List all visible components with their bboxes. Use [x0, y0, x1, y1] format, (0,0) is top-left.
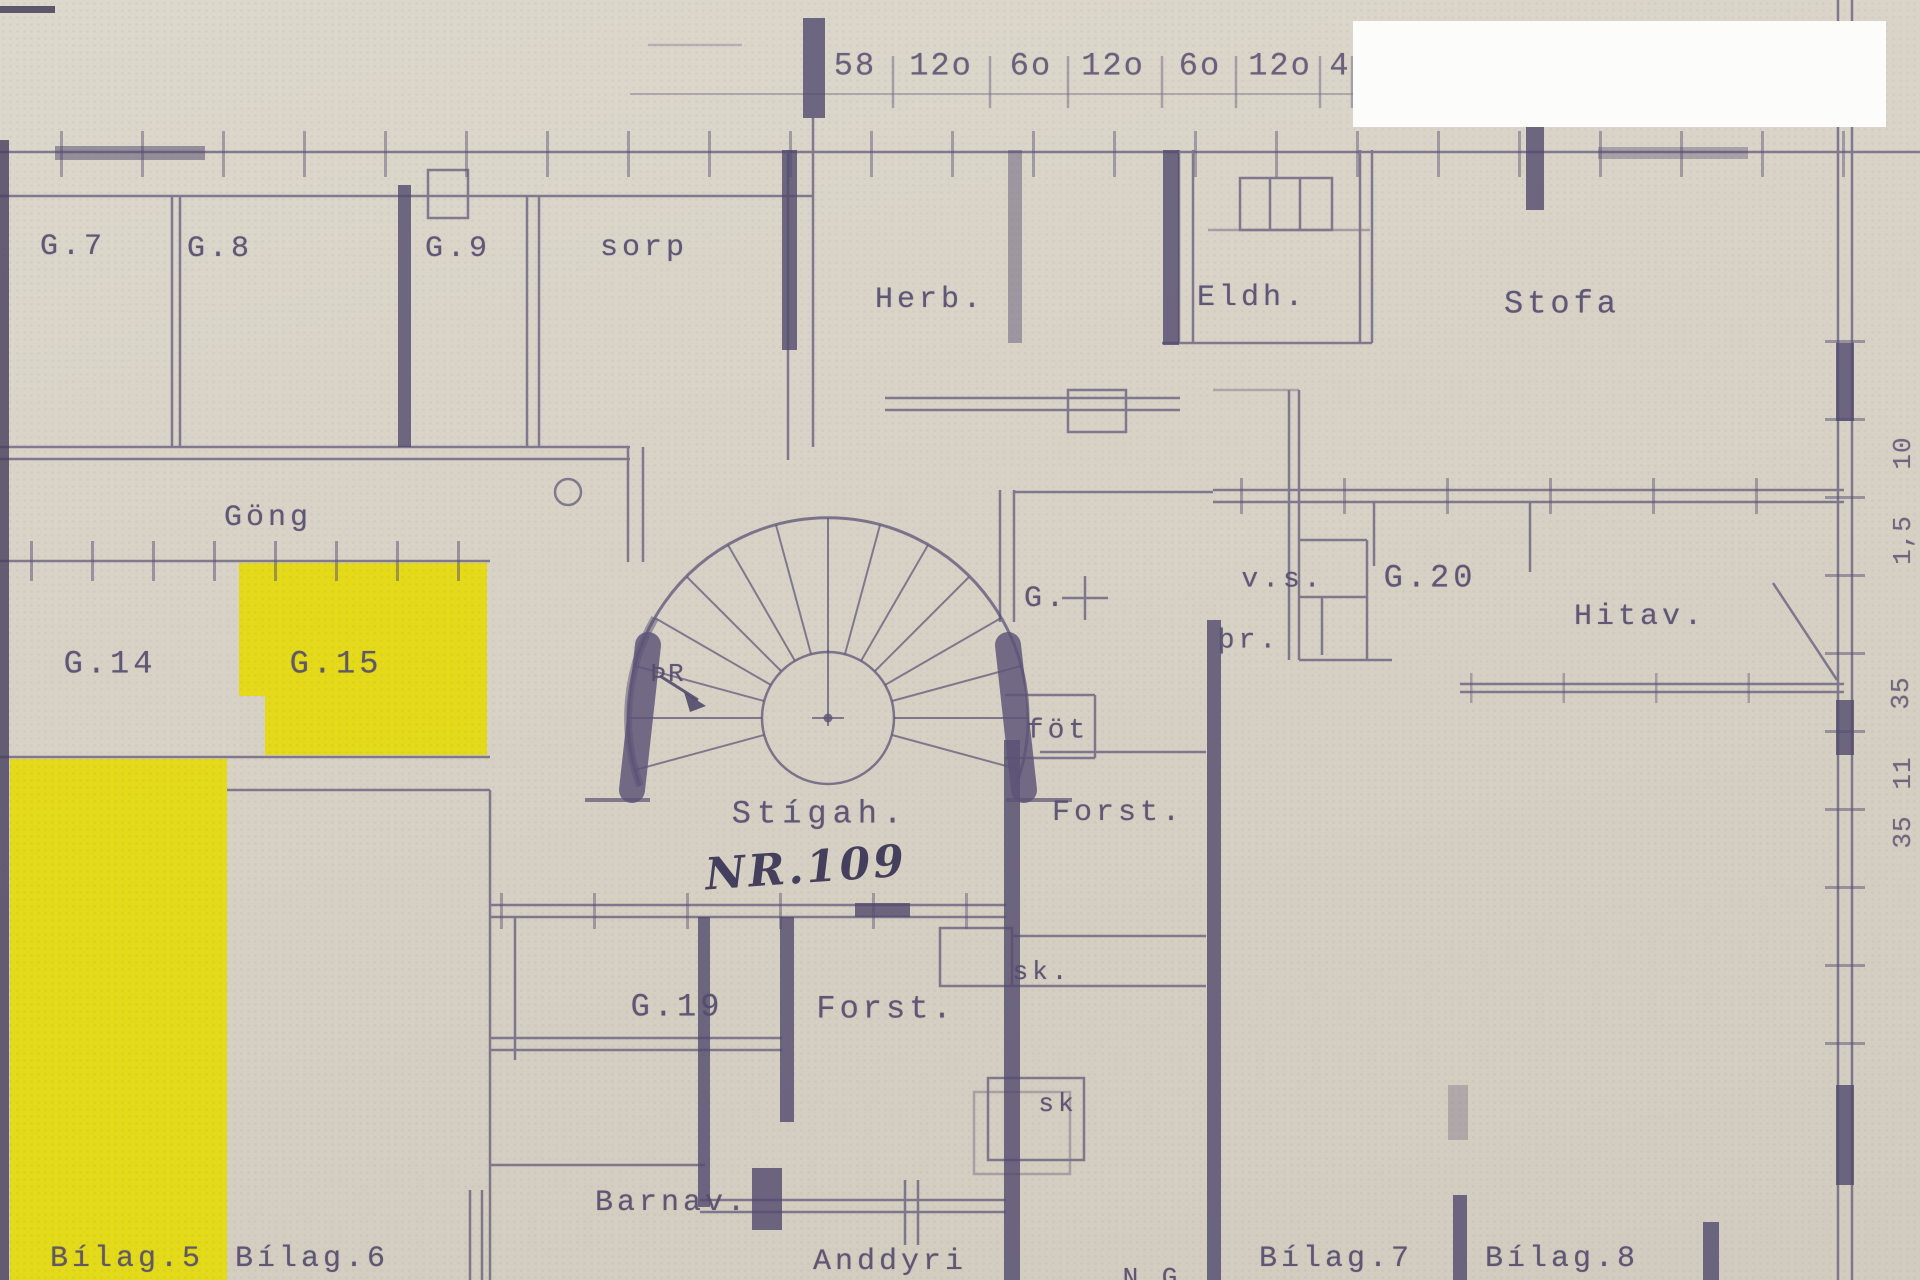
room-label-g19: G.19 — [631, 989, 724, 1026]
dimension-4: 4 — [1329, 48, 1350, 85]
room-label-ng-partial: N.G — [1123, 1263, 1182, 1280]
room-label-forst-upper: Forst. — [1052, 796, 1184, 830]
room-label-gong: Göng — [224, 501, 312, 535]
dimension-58: 58 — [834, 48, 876, 85]
room-label-vs: v.s. — [1241, 565, 1324, 596]
room-label-hitav: Hitav. — [1574, 600, 1706, 634]
scan-edge — [0, 140, 9, 1280]
dimension-12o-a: 12o — [909, 48, 973, 85]
room-label-stigah: Stígah. — [732, 796, 908, 833]
room-label-bilag6: Bílag.6 — [235, 1242, 389, 1276]
room-label-g20: G.20 — [1384, 560, 1477, 597]
room-label-bilag5: Bílag.5 — [50, 1242, 204, 1276]
door-label-thr: ÞR — [650, 659, 685, 689]
scan-mark — [0, 6, 55, 13]
room-label-anddyri: Anddyri — [813, 1245, 967, 1279]
room-label-sorp: sorp — [600, 231, 688, 265]
room-label-forst-lower: Forst. — [816, 991, 955, 1028]
right-dimension-35-b: 35 — [1888, 815, 1918, 848]
realtor-logo: EIGNAMIÐLUN — [1353, 21, 1886, 127]
floorplan-canvas: 58 12o 6o 12o 6o 12o 4 10 1,5 35 11 35 G… — [0, 0, 1920, 1280]
right-dimension-1-5: 1,5 — [1888, 515, 1918, 565]
closet-label-sk-upper: sk. — [1013, 957, 1072, 987]
room-label-g14: G.14 — [64, 646, 157, 683]
room-label-g8: G.8 — [187, 232, 253, 266]
thin-walls — [0, 0, 1920, 1280]
room-label-barnav: Barnav. — [595, 1186, 749, 1220]
room-label-bilag8: Bílag.8 — [1485, 1242, 1639, 1276]
dimension-12o-c: 12o — [1248, 48, 1312, 85]
right-dimension-10: 10 — [1888, 436, 1918, 469]
room-label-g7: G.7 — [40, 230, 106, 264]
room-label-fot: föt — [1027, 716, 1089, 747]
closet-label-sk-lower: sk — [1038, 1089, 1077, 1119]
right-dimension-35-a: 35 — [1886, 676, 1916, 709]
room-label-thr-small: þr. — [1218, 626, 1280, 657]
room-label-stofa: Stofa — [1504, 286, 1620, 323]
stair-treads — [628, 518, 1028, 770]
room-label-g9: G.9 — [425, 232, 491, 266]
room-label-eldh: Eldh. — [1197, 281, 1307, 315]
floorplan-walls — [0, 0, 1920, 1280]
dimension-6o-b: 6o — [1179, 48, 1221, 85]
spiral-staircase — [555, 479, 1072, 800]
right-dimension-11: 11 — [1888, 756, 1918, 789]
dimension-6o-a: 6o — [1010, 48, 1052, 85]
dimension-12o-b: 12o — [1081, 48, 1145, 85]
room-label-g: G. — [1024, 582, 1068, 616]
room-label-bilag7: Bílag.7 — [1259, 1242, 1413, 1276]
room-label-g15: G.15 — [290, 646, 383, 683]
room-label-herb: Herb. — [875, 283, 985, 317]
